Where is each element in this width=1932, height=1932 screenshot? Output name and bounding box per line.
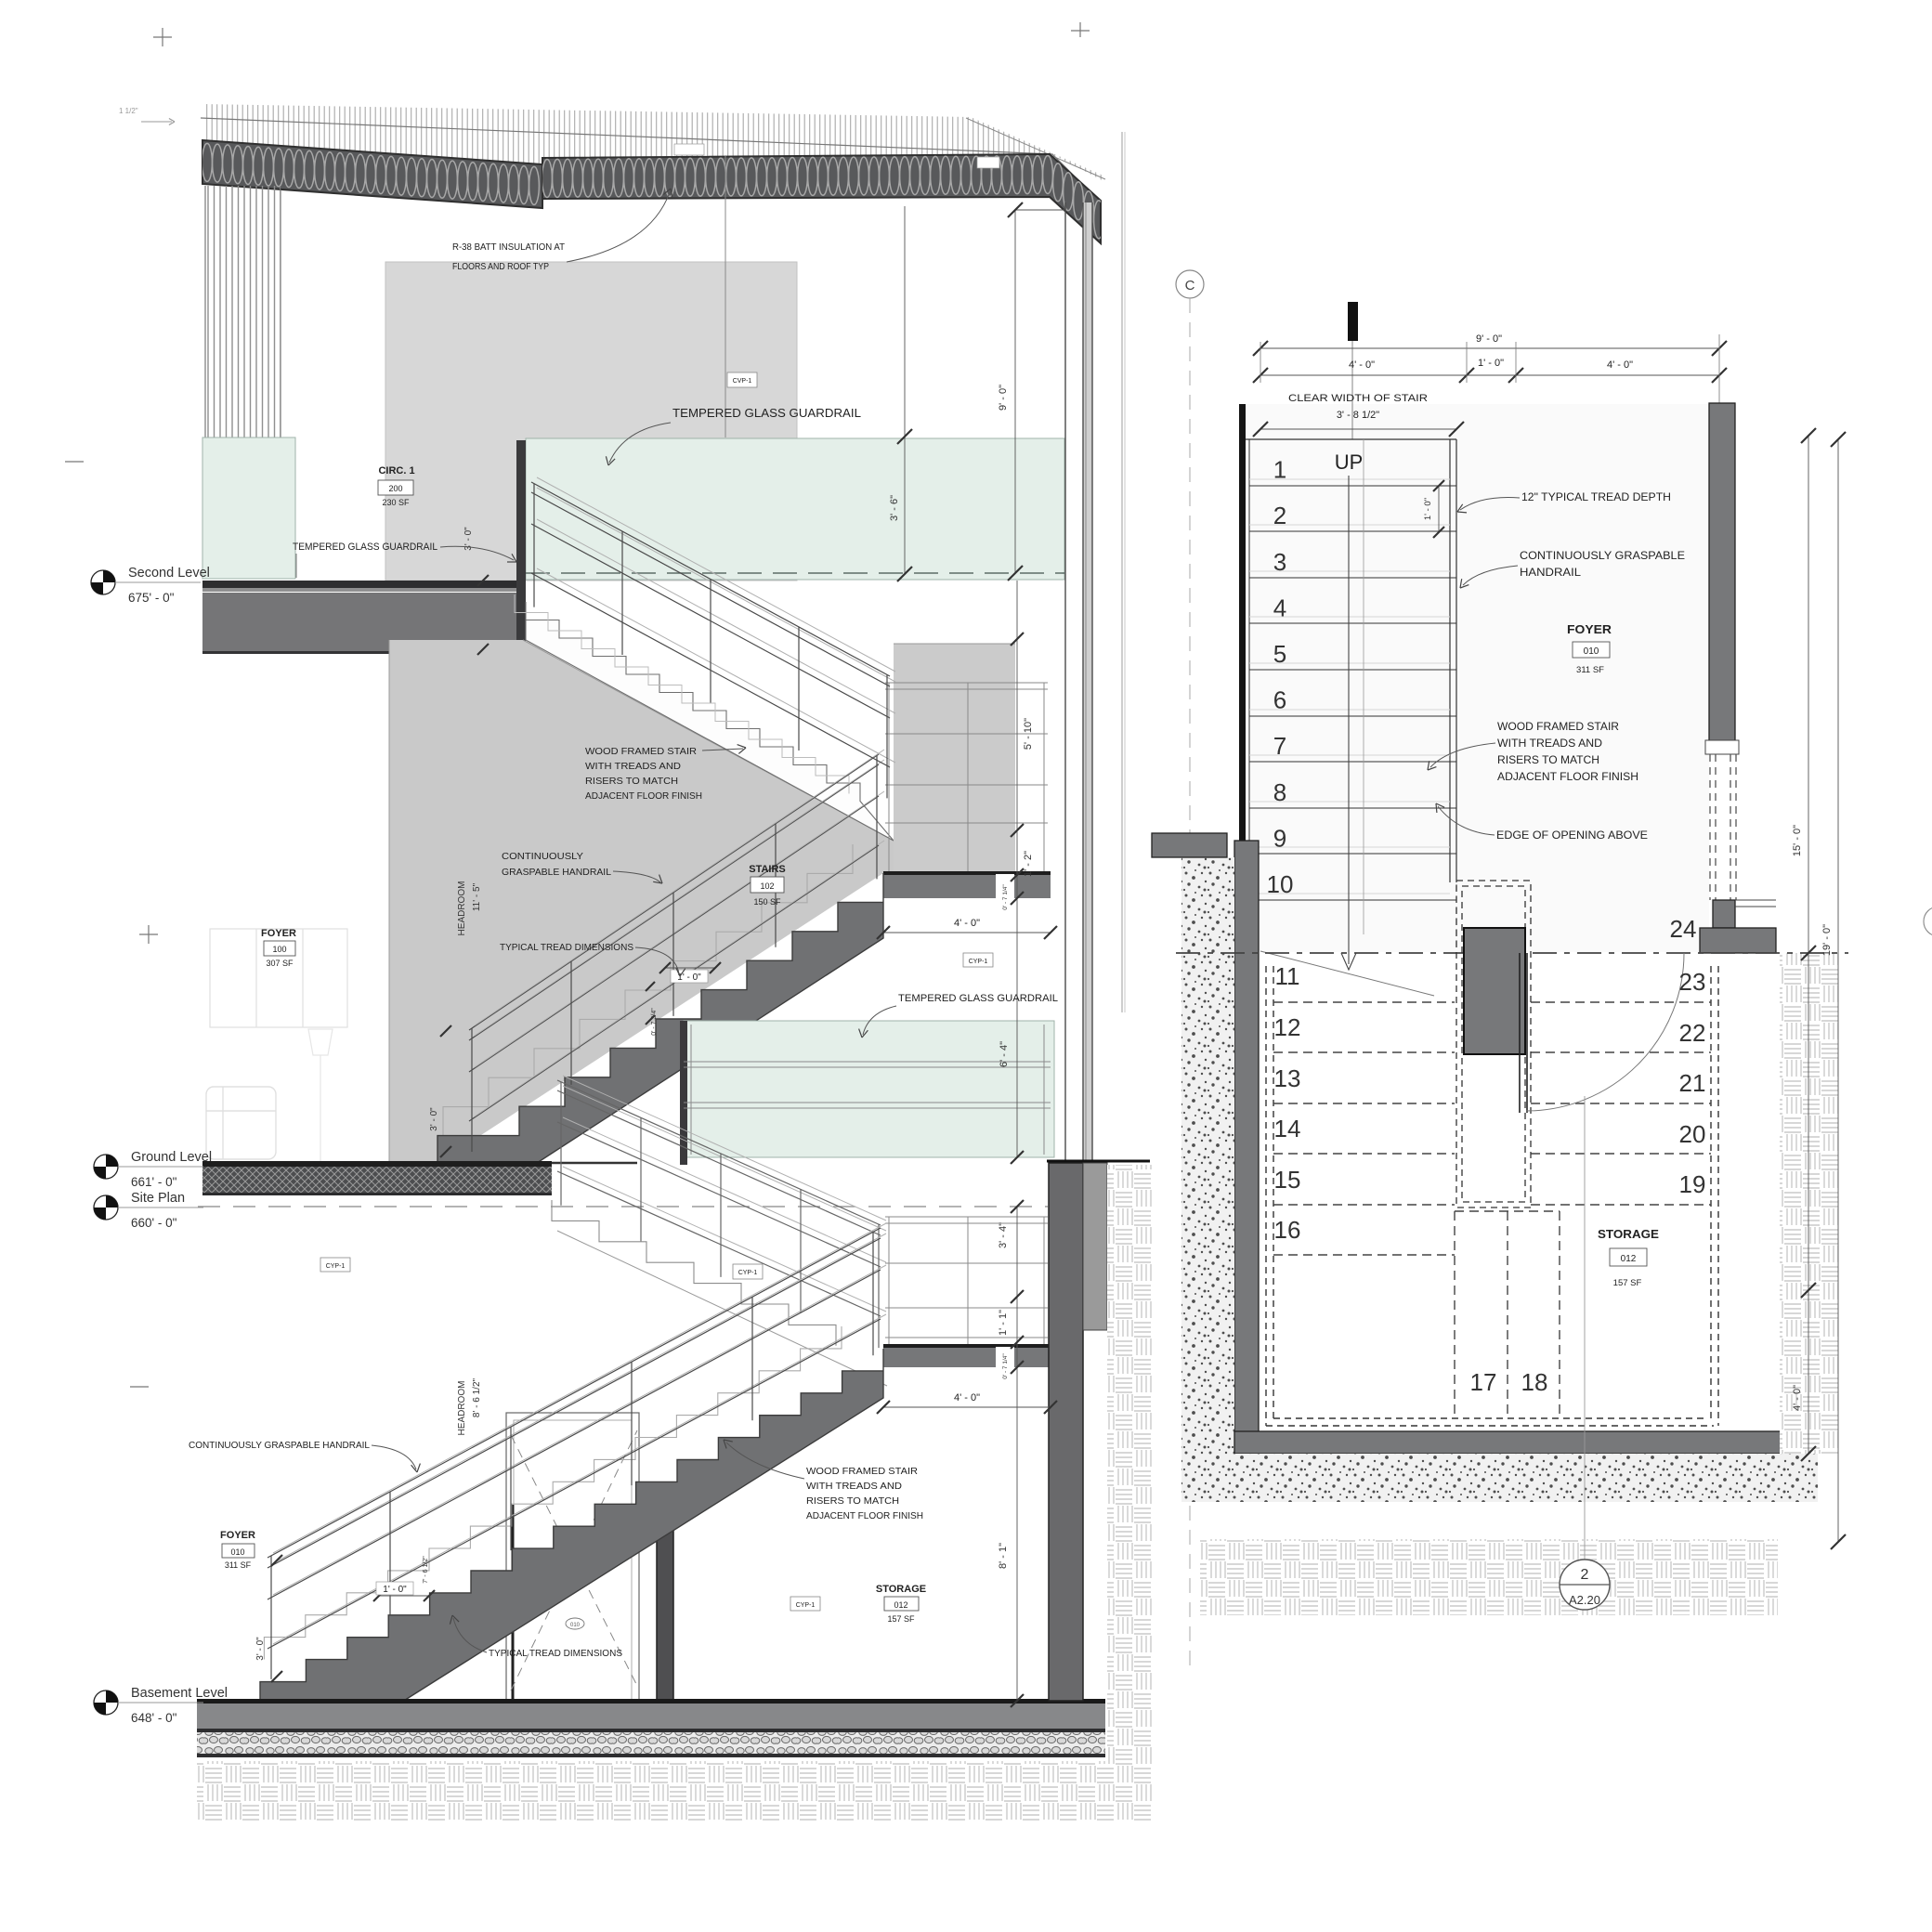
svg-text:STORAGE: STORAGE: [1598, 1227, 1659, 1241]
svg-text:010: 010: [1584, 646, 1599, 657]
svg-text:3' - 0": 3' - 0": [255, 1637, 266, 1661]
svg-text:1' - 2": 1' - 2": [1023, 851, 1034, 877]
svg-text:2: 2: [1273, 502, 1286, 529]
svg-text:WOOD FRAMED STAIR: WOOD FRAMED STAIR: [806, 1466, 918, 1477]
svg-text:15: 15: [1274, 1166, 1301, 1194]
svg-text:RISERS TO MATCH: RISERS TO MATCH: [806, 1495, 899, 1507]
svg-text:1' - 0": 1' - 0": [383, 1585, 407, 1595]
svg-text:9' - 0": 9' - 0": [1476, 333, 1502, 345]
svg-text:CIRC. 1: CIRC. 1: [378, 465, 414, 476]
svg-text:CYP-1: CYP-1: [969, 959, 988, 965]
svg-text:18: 18: [1521, 1368, 1548, 1396]
svg-text:STAIRS: STAIRS: [749, 864, 786, 875]
svg-text:15' - 0": 15' - 0": [1792, 825, 1803, 856]
svg-text:4' - 0": 4' - 0": [954, 918, 980, 929]
svg-text:200: 200: [388, 484, 402, 493]
svg-text:102: 102: [760, 881, 774, 891]
svg-text:EDGE OF OPENING ABOVE: EDGE OF OPENING ABOVE: [1496, 829, 1648, 842]
svg-text:RISERS TO MATCH: RISERS TO MATCH: [585, 776, 678, 787]
svg-text:6: 6: [1273, 686, 1286, 714]
svg-text:FOYER: FOYER: [220, 1530, 255, 1541]
svg-text:ADJACENT FLOOR FINISH: ADJACENT FLOOR FINISH: [806, 1510, 923, 1521]
svg-text:19: 19: [1679, 1170, 1706, 1198]
svg-text:TEMPERED GLASS GUARDRAIL: TEMPERED GLASS GUARDRAIL: [898, 993, 1058, 1004]
svg-text:WITH TREADS AND: WITH TREADS AND: [585, 761, 681, 772]
svg-text:100: 100: [272, 945, 286, 954]
svg-text:307 SF: 307 SF: [266, 959, 294, 968]
svg-text:311 SF: 311 SF: [225, 1560, 252, 1570]
svg-text:3: 3: [1273, 548, 1286, 576]
svg-text:0' - 7 1/4": 0' - 7 1/4": [1002, 884, 1009, 910]
svg-text:CVP-1: CVP-1: [733, 378, 752, 385]
svg-text:4' - 0": 4' - 0": [1792, 1385, 1803, 1411]
svg-text:9: 9: [1273, 824, 1286, 852]
svg-text:17: 17: [1470, 1368, 1497, 1396]
svg-text:0' - 7 1/4": 0' - 7 1/4": [1002, 1353, 1009, 1379]
svg-text:4' - 0": 4' - 0": [1349, 359, 1375, 371]
svg-text:16: 16: [1274, 1216, 1301, 1244]
svg-text:1' - 0": 1' - 0": [1423, 498, 1433, 520]
svg-text:11' - 5": 11' - 5": [472, 882, 482, 911]
svg-text:19' - 0": 19' - 0": [1821, 924, 1833, 956]
svg-text:157 SF: 157 SF: [1613, 1278, 1642, 1288]
svg-text:9' - 0": 9' - 0": [998, 385, 1009, 411]
svg-text:12" TYPICAL TREAD DEPTH: 12" TYPICAL TREAD DEPTH: [1521, 490, 1671, 503]
svg-text:12: 12: [1274, 1013, 1301, 1041]
svg-text:3' - 8 1/2": 3' - 8 1/2": [1337, 410, 1379, 421]
svg-text:TEMPERED GLASS GUARDRAIL: TEMPERED GLASS GUARDRAIL: [293, 542, 437, 553]
svg-text:HEADROOM: HEADROOM: [457, 1381, 467, 1436]
svg-text:24: 24: [1670, 915, 1697, 943]
svg-text:661' - 0": 661' - 0": [131, 1175, 177, 1189]
svg-text:8' - 6 1/2": 8' - 6 1/2": [472, 1377, 482, 1417]
svg-text:TYPICAL TREAD DIMENSIONS: TYPICAL TREAD DIMENSIONS: [489, 1648, 622, 1659]
svg-text:ADJACENT FLOOR FINISH: ADJACENT FLOOR FINISH: [1497, 770, 1638, 783]
svg-text:311 SF: 311 SF: [1576, 665, 1604, 675]
svg-text:4' - 0": 4' - 0": [1607, 359, 1633, 371]
svg-text:10: 10: [1267, 870, 1294, 898]
svg-text:3' - 6": 3' - 6": [889, 495, 900, 521]
svg-text:22: 22: [1679, 1019, 1706, 1047]
svg-text:012: 012: [1621, 1254, 1637, 1264]
svg-text:UP: UP: [1335, 450, 1364, 474]
svg-text:5' - 10": 5' - 10": [1023, 718, 1034, 750]
svg-text:ADJACENT FLOOR FINISH: ADJACENT FLOOR FINISH: [585, 790, 702, 802]
svg-text:HANDRAIL: HANDRAIL: [1520, 566, 1581, 579]
svg-text:230 SF: 230 SF: [382, 498, 410, 507]
svg-text:2: 2: [1581, 1567, 1589, 1583]
svg-text:11: 11: [1275, 962, 1300, 990]
svg-text:CONTINUOUSLY GRASPABLE HANDRAI: CONTINUOUSLY GRASPABLE HANDRAIL: [189, 1440, 370, 1451]
svg-text:157 SF: 157 SF: [887, 1614, 915, 1624]
svg-text:C: C: [1185, 278, 1195, 294]
svg-text:012: 012: [894, 1600, 907, 1610]
svg-text:6' - 4": 6' - 4": [999, 1041, 1010, 1067]
svg-text:WOOD FRAMED STAIR: WOOD FRAMED STAIR: [1497, 720, 1619, 733]
svg-text:21: 21: [1679, 1069, 1706, 1097]
svg-text:A2.20: A2.20: [1569, 1593, 1600, 1607]
svg-text:WITH TREADS AND: WITH TREADS AND: [806, 1481, 902, 1492]
svg-text:CYP-1: CYP-1: [738, 1270, 758, 1276]
svg-text:RISERS TO MATCH: RISERS TO MATCH: [1497, 753, 1599, 766]
svg-text:675' - 0": 675' - 0": [128, 591, 175, 605]
svg-text:FLOORS AND ROOF TYP: FLOORS AND ROOF TYP: [452, 261, 549, 272]
svg-text:Second Level: Second Level: [128, 566, 210, 581]
svg-text:TEMPERED GLASS GUARDRAIL: TEMPERED GLASS GUARDRAIL: [672, 407, 861, 420]
svg-text:5: 5: [1273, 640, 1286, 668]
svg-text:STORAGE: STORAGE: [876, 1584, 926, 1595]
svg-text:648' - 0": 648' - 0": [131, 1711, 177, 1725]
svg-text:HEADROOM: HEADROOM: [457, 881, 467, 936]
svg-text:150 SF: 150 SF: [753, 897, 781, 907]
svg-text:GRASPABLE HANDRAIL: GRASPABLE HANDRAIL: [502, 867, 611, 878]
svg-text:7: 7: [1273, 732, 1286, 760]
svg-text:1' - 0": 1' - 0": [1478, 358, 1504, 369]
svg-text:1 1/2": 1 1/2": [119, 107, 138, 115]
svg-text:3' - 4": 3' - 4": [998, 1222, 1009, 1248]
svg-text:23: 23: [1679, 968, 1706, 996]
svg-text:1' - 1": 1' - 1": [998, 1310, 1009, 1336]
svg-text:Basement Level: Basement Level: [131, 1686, 228, 1701]
svg-text:WITH TREADS AND: WITH TREADS AND: [1497, 737, 1602, 750]
svg-text:CONTINUOUSLY GRASPABLE: CONTINUOUSLY GRASPABLE: [1520, 549, 1685, 562]
svg-text:R-38 BATT INSULATION AT: R-38 BATT INSULATION AT: [452, 241, 566, 253]
svg-text:010: 010: [570, 1623, 581, 1628]
svg-text:3' - 0": 3' - 0": [429, 1107, 439, 1131]
svg-text:WOOD FRAMED STAIR: WOOD FRAMED STAIR: [585, 746, 697, 757]
svg-text:4: 4: [1273, 594, 1286, 621]
svg-text:1: 1: [1273, 456, 1286, 484]
svg-text:0' - 7 3/4": 0' - 7 3/4": [651, 1008, 658, 1036]
svg-text:20: 20: [1679, 1120, 1706, 1148]
svg-text:4' - 0": 4' - 0": [954, 1392, 980, 1403]
svg-text:660' - 0": 660' - 0": [131, 1216, 177, 1230]
svg-text:Ground Level: Ground Level: [131, 1150, 212, 1165]
svg-text:CYP-1: CYP-1: [326, 1263, 346, 1270]
svg-text:010: 010: [230, 1547, 244, 1557]
svg-text:TYPICAL TREAD DIMENSIONS: TYPICAL TREAD DIMENSIONS: [500, 942, 633, 953]
svg-text:FOYER: FOYER: [261, 928, 296, 939]
svg-text:FOYER: FOYER: [1567, 622, 1612, 636]
svg-text:Site Plan: Site Plan: [131, 1191, 185, 1206]
svg-text:CONTINUOUSLY: CONTINUOUSLY: [502, 851, 583, 862]
svg-text:CLEAR WIDTH OF STAIR: CLEAR WIDTH OF STAIR: [1288, 393, 1428, 404]
svg-text:8: 8: [1273, 778, 1286, 806]
svg-text:7' - 6 1/2": 7' - 6 1/2": [423, 1556, 429, 1584]
svg-text:8' - 1": 8' - 1": [998, 1543, 1009, 1569]
svg-text:14: 14: [1274, 1115, 1301, 1142]
svg-text:CYP-1: CYP-1: [796, 1602, 816, 1609]
svg-text:13: 13: [1274, 1064, 1301, 1092]
